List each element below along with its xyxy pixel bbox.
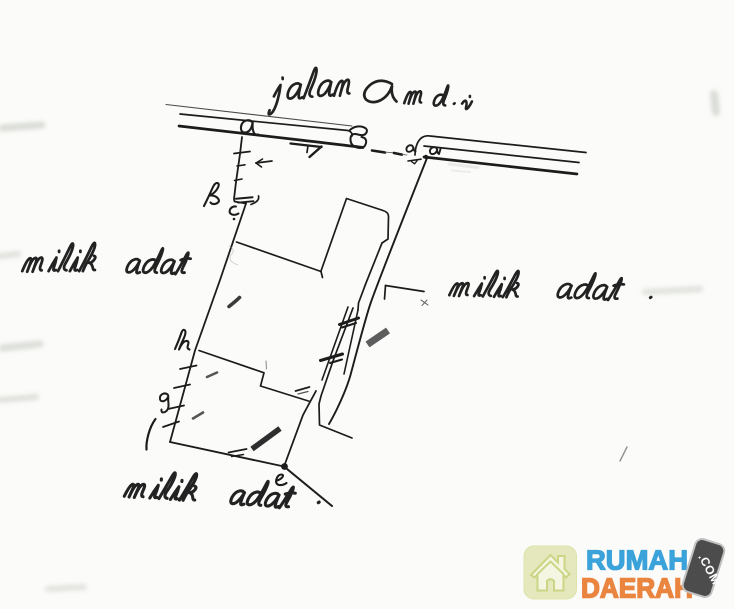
svg-text:DAERAH: DAERAH <box>581 574 693 605</box>
svg-text:RUMAH: RUMAH <box>586 545 688 576</box>
